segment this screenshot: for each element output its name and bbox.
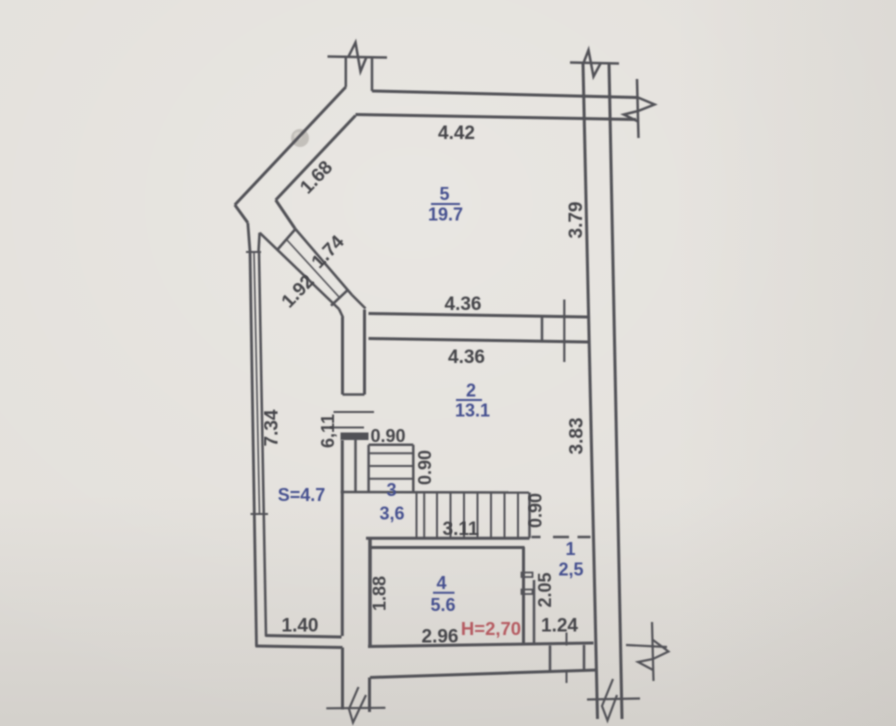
svg-text:3,6: 3,6 [379,504,404,524]
svg-text:5: 5 [439,184,449,204]
svg-text:1.88: 1.88 [370,576,390,611]
svg-text:Н=2,70: Н=2,70 [461,618,521,639]
svg-text:7.34: 7.34 [262,409,283,446]
svg-text:0.90: 0.90 [415,450,435,485]
svg-text:0.90: 0.90 [526,493,546,528]
svg-text:3.79: 3.79 [566,202,587,239]
svg-text:2.05: 2.05 [535,572,555,607]
svg-text:4: 4 [436,573,446,593]
svg-text:2,5: 2,5 [558,560,583,580]
svg-text:3.83: 3.83 [567,418,588,455]
svg-text:4.36: 4.36 [448,347,485,368]
svg-text:5.6: 5.6 [430,595,455,615]
svg-text:S=4.7: S=4.7 [278,485,326,505]
svg-text:6,11: 6,11 [318,414,338,448]
svg-text:19.7: 19.7 [428,205,463,225]
svg-text:4.36: 4.36 [445,294,482,315]
svg-text:1.24: 1.24 [541,616,578,637]
svg-text:3.11: 3.11 [443,519,479,540]
svg-text:13.1: 13.1 [455,401,490,421]
svg-text:2.96: 2.96 [422,627,459,648]
svg-text:3: 3 [386,480,396,500]
svg-text:4.42: 4.42 [438,123,475,144]
svg-text:0.90: 0.90 [370,426,405,446]
svg-text:1: 1 [565,539,575,559]
svg-text:2: 2 [466,381,476,401]
svg-text:1.40: 1.40 [282,616,319,637]
